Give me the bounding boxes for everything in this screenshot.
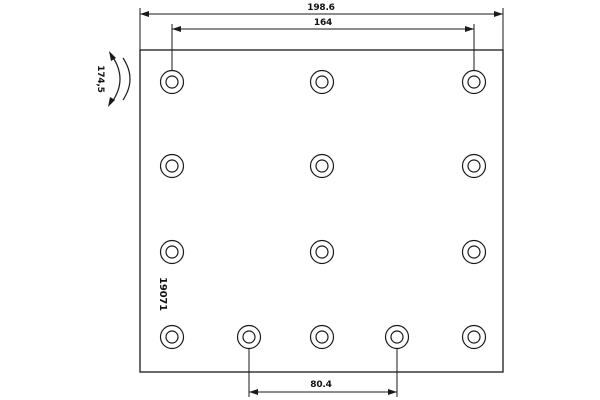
radius-arc-symbol — [108, 51, 130, 107]
outer-arc — [112, 56, 120, 102]
rivet-hole-inner — [468, 160, 480, 172]
rivet-hole-inner — [468, 246, 480, 258]
rivet-hole-outer — [161, 241, 184, 264]
holes-layer — [161, 71, 486, 349]
rivet-hole-outer — [386, 326, 409, 349]
rivet-hole-inner — [316, 160, 328, 172]
rivet-hole-inner — [166, 246, 178, 258]
technical-drawing-canvas: 198.6 164 80.4 174,5 19071 — [0, 0, 600, 400]
drawing-svg — [0, 0, 600, 400]
arc-arrow-top — [109, 51, 116, 61]
rivet-hole-outer — [311, 71, 334, 94]
rivet-hole-inner — [468, 76, 480, 88]
arrowhead-right — [465, 26, 474, 32]
rivet-hole-inner — [166, 76, 178, 88]
rivet-hole-inner — [316, 76, 328, 88]
rivet-hole-outer — [161, 326, 184, 349]
bottom-hole-span-label: 80.4 — [310, 380, 331, 390]
rivet-hole-outer — [161, 155, 184, 178]
rivet-hole-outer — [311, 326, 334, 349]
rivet-hole-outer — [463, 326, 486, 349]
part-number-label: 19071 — [157, 277, 167, 311]
arrowhead-left — [140, 11, 149, 17]
plate-outline — [140, 50, 503, 372]
arrowhead-right — [388, 389, 397, 395]
rivet-hole-outer — [311, 241, 334, 264]
rivet-hole-inner — [316, 331, 328, 343]
arrowhead-left — [249, 389, 258, 395]
rivet-hole-inner — [391, 331, 403, 343]
rivet-hole-inner — [166, 160, 178, 172]
rivet-hole-outer — [463, 155, 486, 178]
dimension-top-hole-span — [172, 24, 474, 71]
rivet-hole-inner — [166, 331, 178, 343]
inner-arc — [123, 58, 130, 100]
rivet-hole-inner — [316, 246, 328, 258]
radius-label: 174,5 — [95, 65, 105, 92]
rivet-hole-inner — [468, 331, 480, 343]
arrowhead-right — [494, 11, 503, 17]
rivet-hole-outer — [463, 71, 486, 94]
arrowhead-left — [172, 26, 181, 32]
rivet-hole-outer — [238, 326, 261, 349]
rivet-hole-inner — [243, 331, 255, 343]
rivet-hole-outer — [161, 71, 184, 94]
top-hole-span-label: 164 — [314, 18, 332, 28]
rivet-hole-outer — [463, 241, 486, 264]
rivet-hole-outer — [311, 155, 334, 178]
total-width-label: 198.6 — [307, 3, 334, 13]
